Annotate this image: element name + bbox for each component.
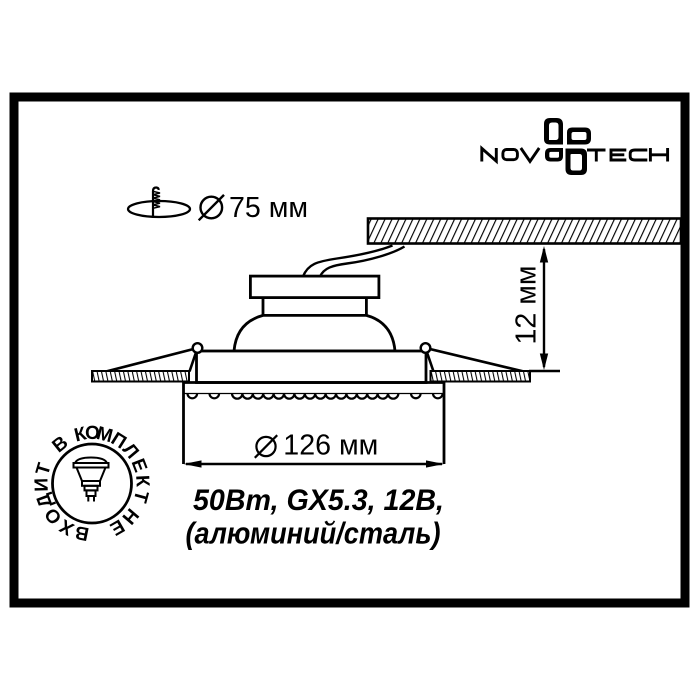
svg-text:75 мм: 75 мм bbox=[229, 192, 308, 224]
svg-text:50Вт, GX5.3, 12В,: 50Вт, GX5.3, 12В, bbox=[193, 484, 444, 517]
svg-text:126 мм: 126 мм bbox=[283, 430, 378, 462]
svg-text:12 мм: 12 мм bbox=[511, 265, 543, 344]
svg-text:И: И bbox=[31, 478, 52, 492]
svg-text:(алюминий/сталь): (алюминий/сталь) bbox=[186, 516, 441, 551]
svg-text:К: К bbox=[131, 475, 153, 488]
